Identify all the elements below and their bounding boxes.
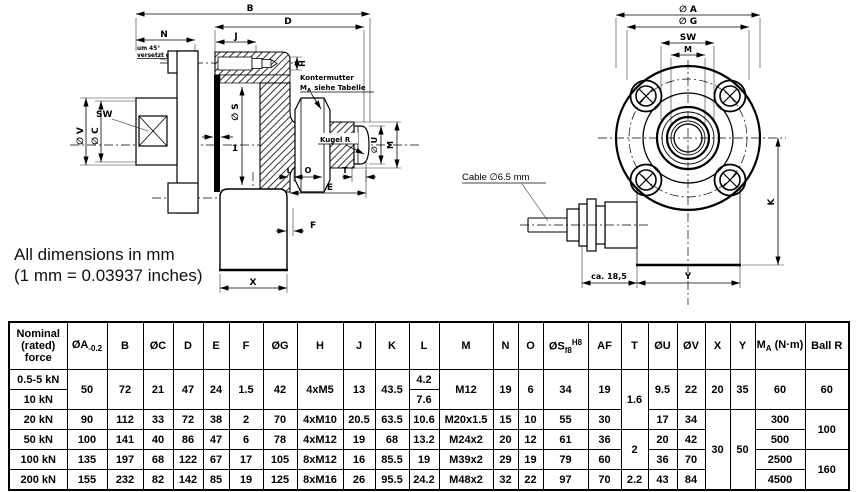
- table-cell: 47: [173, 370, 203, 410]
- table-cell: 40: [143, 430, 173, 450]
- table-cell: 8xM12: [297, 450, 343, 470]
- table-cell: 19: [409, 450, 439, 470]
- lock-nut: [295, 98, 330, 192]
- table-column-header: M: [439, 322, 493, 370]
- table-cell: 90: [67, 410, 107, 430]
- table-cell: 34: [543, 370, 588, 410]
- table-cell: 36: [588, 430, 621, 450]
- table-cell: 70: [677, 450, 705, 470]
- table-cell: 43: [648, 470, 677, 491]
- table-cell: 43.5: [375, 370, 409, 410]
- table-cell: 20: [648, 430, 677, 450]
- table-cell: 10 kN: [9, 390, 67, 410]
- table-cell: 13: [343, 370, 375, 410]
- dim-label-1: 1: [232, 144, 238, 154]
- table-column-header: Nominal (rated) force: [9, 322, 67, 370]
- dim-label-SW: SW: [96, 110, 112, 120]
- table-cell: 35: [730, 370, 755, 410]
- table-cell: 42: [677, 430, 705, 450]
- table-column-header: B: [107, 322, 143, 370]
- table-cell: 21: [143, 370, 173, 410]
- table-cell: 30: [588, 410, 621, 430]
- table-cell: M39x2: [439, 450, 493, 470]
- table-cell: 7.6: [409, 390, 439, 410]
- table-cell: 100: [67, 430, 107, 450]
- ball-end: [354, 126, 369, 164]
- table-cell: 84: [677, 470, 705, 491]
- table-cell: 17: [229, 450, 263, 470]
- table-cell: 15: [493, 410, 518, 430]
- table-cell: 61: [543, 430, 588, 450]
- table-cell: 10: [518, 410, 543, 430]
- table-cell: 8xM16: [297, 470, 343, 491]
- table-cell: 4500: [755, 470, 805, 491]
- table-cell: 42: [263, 370, 297, 410]
- dim-label-F: F: [310, 221, 316, 231]
- offset-note-line1: um 45°: [137, 46, 160, 52]
- table-column-header: D: [173, 322, 203, 370]
- table-cell: 34: [677, 410, 705, 430]
- table-column-header: ØSf8H8: [543, 322, 588, 370]
- dim-label-M-front: M: [684, 45, 692, 54]
- dim-label-O: O: [305, 166, 312, 175]
- dim-label-X: X: [250, 278, 257, 288]
- table-cell: 78: [263, 430, 297, 450]
- table-cell: 4xM12: [297, 430, 343, 450]
- table-cell: 2: [621, 430, 648, 470]
- table-cell: 38: [203, 410, 229, 430]
- table-cell: 1.5: [229, 370, 263, 410]
- table-cell: 24: [203, 370, 229, 410]
- table-column-header: AF: [588, 322, 621, 370]
- table-column-header: ØG: [263, 322, 297, 370]
- table-cell: 100 kN: [9, 450, 67, 470]
- table-cell: 6: [518, 370, 543, 410]
- table-column-header: H: [297, 322, 343, 370]
- table-cell: 68: [143, 450, 173, 470]
- table-cell: 6: [229, 430, 263, 450]
- table-column-header: ØC: [143, 322, 173, 370]
- table-cell: 4xM10: [297, 410, 343, 430]
- table-cell: 30: [705, 410, 730, 491]
- table-cell: 32: [493, 470, 518, 491]
- dim-label-S: ∅ S: [231, 103, 241, 120]
- table-cell: 10.6: [409, 410, 439, 430]
- table-cell: 12: [518, 430, 543, 450]
- table-cell: 97: [543, 470, 588, 491]
- table-cell: 105: [263, 450, 297, 470]
- table-cell: 82: [143, 470, 173, 491]
- table-cell: 60: [755, 370, 805, 410]
- table-cell: 26: [343, 470, 375, 491]
- load-button: [220, 189, 287, 270]
- table-cell: 155: [67, 470, 107, 491]
- dim-label-J: J: [233, 32, 237, 42]
- dim-label-C: ∅ C: [91, 127, 101, 145]
- table-cell: 50 kN: [9, 430, 67, 450]
- table-column-header: Y: [730, 322, 755, 370]
- table-cell: 135: [67, 450, 107, 470]
- dim-label-L: L: [287, 167, 292, 175]
- dimension-table: Nominal (rated) forceØA-0.2BØCDEFØGHJKLM…: [8, 321, 850, 491]
- table-cell: M20x1.5: [439, 410, 493, 430]
- table-cell: 2.2: [621, 470, 648, 491]
- table-cell: 9.5: [648, 370, 677, 410]
- table-cell: 36: [648, 450, 677, 470]
- table-cell: 197: [107, 450, 143, 470]
- dim-label-H: H: [298, 60, 307, 67]
- table-column-header: ØV: [677, 322, 705, 370]
- table-cell: 50: [67, 370, 107, 410]
- units-note-line2: (1 mm = 0.03937 inches): [14, 265, 203, 286]
- table-cell: 232: [107, 470, 143, 491]
- table-cell: 70: [263, 410, 297, 430]
- table-cell: 70: [588, 470, 621, 491]
- dim-label-SW-front: SW: [680, 33, 696, 43]
- table-column-header: X: [705, 322, 730, 370]
- table-cell: 72: [173, 410, 203, 430]
- table-cell: 22: [518, 470, 543, 491]
- table-cell: 4xM5: [297, 370, 343, 410]
- table-column-header: ØU: [648, 322, 677, 370]
- table-cell: 100: [805, 410, 849, 450]
- table-column-header: L: [409, 322, 439, 370]
- table-cell: 19: [229, 470, 263, 491]
- table-cell: 20: [705, 370, 730, 410]
- table-cell: M12: [439, 370, 493, 410]
- table-cell: 2: [229, 410, 263, 430]
- table-row: 20 kN901123372382704xM1020.563.510.6M20x…: [9, 410, 849, 430]
- dim-label-N: N: [160, 30, 168, 40]
- table-cell: 55: [543, 410, 588, 430]
- table-cell: 63.5: [375, 410, 409, 430]
- dim-label-E: E: [327, 183, 333, 193]
- cable-label: Cable ∅6.5 mm: [462, 172, 529, 183]
- table-cell: 19: [493, 370, 518, 410]
- table-cell: 112: [107, 410, 143, 430]
- table-cell: 79: [543, 450, 588, 470]
- table-cell: 17: [648, 410, 677, 430]
- table-cell: 60: [588, 450, 621, 470]
- diaphragm-wall: [214, 75, 220, 192]
- table-column-header: T: [621, 322, 648, 370]
- dim-label-G: ∅ G: [679, 17, 697, 27]
- table-cell: 2500: [755, 450, 805, 470]
- table-cell: 85: [203, 470, 229, 491]
- table-cell: 86: [173, 430, 203, 450]
- table-cell: 24.2: [409, 470, 439, 491]
- table-cell: 95.5: [375, 470, 409, 491]
- table-column-header: J: [343, 322, 375, 370]
- table-cell: 300: [755, 410, 805, 430]
- table-row: 0.5-5 kN50722147241.5424xM51343.54.2M121…: [9, 370, 849, 390]
- table-cell: 20.5: [343, 410, 375, 430]
- table-column-header: F: [229, 322, 263, 370]
- table-cell: 141: [107, 430, 143, 450]
- table-cell: 1.6: [621, 370, 648, 430]
- dim-label-D: D: [284, 17, 291, 27]
- table-column-header: MA (N·m): [755, 322, 805, 370]
- dim-label-U: ∅ U: [370, 137, 379, 153]
- table-cell: 122: [173, 450, 203, 470]
- table-cell: 20 kN: [9, 410, 67, 430]
- table-header-row: Nominal (rated) forceØA-0.2BØCDEFØGHJKLM…: [9, 322, 849, 370]
- table-cell: 67: [203, 450, 229, 470]
- units-note: All dimensions in mm (1 mm = 0.03937 inc…: [14, 244, 203, 286]
- table-column-header: N: [493, 322, 518, 370]
- table-cell: 160: [805, 450, 849, 491]
- locknut-note-line2: MAsiehe Tabelle: [300, 84, 366, 94]
- table-cell: 19: [518, 450, 543, 470]
- table-cell: 125: [263, 470, 297, 491]
- front-view-drawing: ∅ A ∅ G SW M Cable ∅6.5 mm: [440, 0, 856, 320]
- table-cell: 19: [343, 430, 375, 450]
- dim-label-B: B: [247, 4, 254, 14]
- dim-label-A: ∅ A: [679, 5, 697, 15]
- dim-label-cable-length: ca. 18,5: [591, 272, 627, 281]
- table-cell: 85.5: [375, 450, 409, 470]
- dimension-table-wrap: Nominal (rated) forceØA-0.2BØCDEFØGHJKLM…: [8, 321, 850, 491]
- table-cell: 16: [343, 450, 375, 470]
- table-cell: 19: [588, 370, 621, 410]
- table-column-header: ØA-0.2: [67, 322, 107, 370]
- table-cell: 200 kN: [9, 470, 67, 491]
- dim-label-M: M: [386, 141, 395, 149]
- table-cell: 13.2: [409, 430, 439, 450]
- table-cell: 20: [493, 430, 518, 450]
- dim-label-V: ∅ V: [76, 127, 86, 145]
- datasheet-page: B D N J um 45° versetzt gez. ∅ V ∅ C SW: [0, 0, 856, 492]
- spec-table-body: 0.5-5 kN50722147241.5424xM51343.54.2M121…: [9, 370, 849, 491]
- dim-label-Y: Y: [684, 272, 692, 282]
- units-note-line1: All dimensions in mm: [14, 244, 203, 265]
- table-cell: 68: [375, 430, 409, 450]
- table-column-header: K: [375, 322, 409, 370]
- table-cell: 500: [755, 430, 805, 450]
- table-cell: M48x2: [439, 470, 493, 491]
- table-column-header: O: [518, 322, 543, 370]
- table-column-header: Ball R: [805, 322, 849, 370]
- table-column-header: E: [203, 322, 229, 370]
- table-cell: 142: [173, 470, 203, 491]
- dim-label-T: T: [342, 166, 348, 175]
- table-cell: 47: [203, 430, 229, 450]
- ball-note: Kugel R: [320, 136, 351, 144]
- table-cell: 0.5-5 kN: [9, 370, 67, 390]
- table-cell: 50: [730, 410, 755, 491]
- table-cell: 60: [805, 370, 849, 410]
- table-cell: 72: [107, 370, 143, 410]
- table-cell: 4.2: [409, 370, 439, 390]
- table-cell: 29: [493, 450, 518, 470]
- table-cell: 33: [143, 410, 173, 430]
- dim-label-K: K: [767, 197, 777, 205]
- locknut-note-line1: Kontermutter: [300, 74, 354, 82]
- table-cell: 22: [677, 370, 705, 410]
- table-cell: M24x2: [439, 430, 493, 450]
